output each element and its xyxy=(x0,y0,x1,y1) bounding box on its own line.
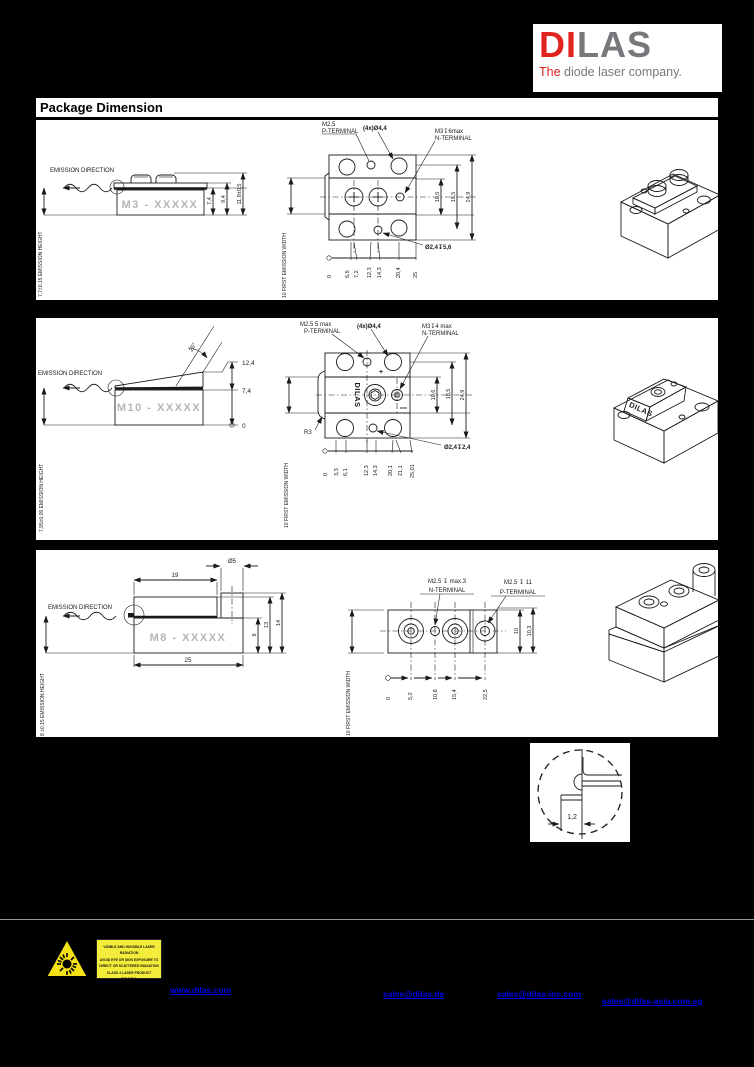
m3-tick-0: 0 xyxy=(327,275,333,278)
logo-tagline-the: The xyxy=(539,65,561,79)
m3-tick-25: 25 xyxy=(413,272,419,278)
m8-drawing: EMISSION DIRECTION Ø5 19 8 13 14 25 M8 -… xyxy=(36,550,718,737)
m8-side-view-linework xyxy=(46,566,286,667)
m10-model-label: M10 - XXXXX xyxy=(117,402,201,414)
logo-tagline: The diode laser company. xyxy=(539,65,716,79)
m10-dim-12-4: 12,4 xyxy=(242,360,255,367)
section-heading-bar: Package Dimension xyxy=(36,98,718,120)
m3-emission-width-label: 10 FIRST EMISSION WIDTH xyxy=(282,233,288,298)
drawing-section-m10: EMISSION DIRECTION 25° 12,4 7,4 0 M10 - … xyxy=(36,318,718,540)
m10-tick-21-1: 21,1 xyxy=(398,465,404,476)
m3-dim-24-9: 24,9 xyxy=(466,192,472,203)
m10-emission-width-label: 10 FIRST EMISSION WIDTH xyxy=(284,463,290,528)
m3-emission-direction-label: EMISSION DIRECTION xyxy=(50,168,114,174)
logo-tagline-rest: diode laser company. xyxy=(561,65,682,79)
m10-dim-18-5: 18,5 xyxy=(446,389,452,400)
m8-pterm-size: M2.5 ↧ 11 xyxy=(504,579,533,586)
m10-pterm-size: M2.5 5 max xyxy=(300,322,331,328)
m10-emission-direction-label: EMISSION DIRECTION xyxy=(38,371,102,377)
m8-dim-10: 10 xyxy=(514,628,520,634)
m3-pterm-label: P-TERMINAL xyxy=(322,129,359,135)
m8-tick-10-8: 10,8 xyxy=(433,689,439,700)
m3-dim-10-5: 10,5 xyxy=(435,192,441,203)
link-sales-asia[interactable]: sales@dilas-asia.com.sg xyxy=(602,996,702,1006)
logo-di: DI xyxy=(539,24,577,65)
m10-pterm-label: P-TERMINAL xyxy=(304,329,341,335)
m10-tick-14-3: 14,3 xyxy=(373,465,379,476)
m10-cbore-label: Ø2,4↧2,4 xyxy=(444,444,471,451)
m10-holes-label: (4x)Ø4,4 xyxy=(357,324,381,330)
laser-warning-icon xyxy=(44,936,90,981)
m10-dim-24-9: 24,9 xyxy=(460,390,466,401)
m3-drawing: EMISSION DIRECTION 7,4 9,4 11,9±0,5 M3 -… xyxy=(36,120,718,300)
m10-radius-label: R3 xyxy=(304,430,312,436)
m3-nterm-label: N-TERMINAL xyxy=(435,136,472,142)
m3-tick-20-4: 20,4 xyxy=(396,267,402,278)
m8-tick-15-4: 15,4 xyxy=(452,689,458,700)
m8-nterm-size: M2.5 ↧ max.3 xyxy=(428,578,467,585)
logo-las: LAS xyxy=(577,24,652,65)
detail-linework xyxy=(538,749,622,839)
m8-isometric-view xyxy=(609,564,718,683)
m3-dim-9-4: 9,4 xyxy=(221,195,227,203)
detail-view: 1,2 xyxy=(530,743,630,842)
m8-emission-height-label: 8 ±0,15 EMISSION HEIGHT xyxy=(40,673,46,736)
m3-holes-label: (4x)Ø4,4 xyxy=(363,126,387,132)
m8-front-view-linework xyxy=(348,594,545,680)
m10-tick-20-1: 20,1 xyxy=(388,465,394,476)
m3-front-view-linework xyxy=(287,132,476,260)
m8-dim-14: 14 xyxy=(276,620,282,626)
warning-line: IEC 825-1 xyxy=(97,976,161,982)
m10-emission-height-label: 7,95±0,05 EMISSION HEIGHT xyxy=(39,464,45,532)
m8-dim-d5: Ø5 xyxy=(228,559,237,565)
m10-dim-0: 0 xyxy=(242,423,246,430)
m3-tick-14-3: 14,3 xyxy=(377,267,383,278)
m10-angle-label: 25° xyxy=(189,342,199,353)
logo-wordmark: DILAS xyxy=(539,26,716,64)
m3-tick-6-5: 6,5 xyxy=(345,270,351,278)
detail-drawing: 1,2 xyxy=(530,743,630,842)
m10-plus-mark: + xyxy=(379,369,383,376)
m8-dim-10-3: 10,3 xyxy=(527,626,533,637)
m8-dim-8: 8 xyxy=(252,633,258,636)
m8-dim-13: 13 xyxy=(264,622,270,628)
m8-pterm-label: P-TERMINAL xyxy=(500,590,537,596)
m8-emission-width-label: 10 FIRST EMISSION WIDTH xyxy=(346,671,352,736)
m8-dim-19: 19 xyxy=(172,573,179,579)
m3-pterm-size: M2.5 xyxy=(322,122,336,128)
laser-warning-label: VISIBLE AND INVISIBLE LASER RADIATION AV… xyxy=(96,939,162,979)
m10-dim-10-6: 10,6 xyxy=(431,390,437,401)
link-sales-de[interactable]: sales@dilas.de xyxy=(383,989,444,999)
m10-drawing: EMISSION DIRECTION 25° 12,4 7,4 0 M10 - … xyxy=(36,318,718,540)
m8-nterm-label: N-TERMINAL xyxy=(429,588,466,594)
drawing-section-m3: EMISSION DIRECTION 7,4 9,4 11,9±0,5 M3 -… xyxy=(36,120,718,300)
link-sales-inc[interactable]: sales@dilas-inc.com xyxy=(497,989,581,999)
m3-tick-7-2: 7,2 xyxy=(354,270,360,278)
m8-dim-25: 25 xyxy=(185,658,192,664)
m3-emission-height-label: 7,7±0,15 EMISSION HEIGHT xyxy=(38,231,44,297)
m10-tick-0: 0 xyxy=(323,473,329,476)
link-website[interactable]: www.dilas.com xyxy=(170,985,231,995)
m8-model-label: M8 - XXXXX xyxy=(150,632,227,644)
detail-dim-1-2: 1,2 xyxy=(567,814,577,821)
m10-tick-25-01: 25,01 xyxy=(410,464,416,478)
m10-tick-6-1: 6,1 xyxy=(343,468,349,476)
m10-tick-12-3: 12,3 xyxy=(364,465,370,476)
dilas-logo: DILAS The diode laser company. xyxy=(533,24,722,92)
m3-nterm-size: M3↧6max xyxy=(435,128,463,135)
m8-tick-5-2: 5,2 xyxy=(408,692,414,700)
m8-emission-direction-label: EMISSION DIRECTION xyxy=(48,605,112,611)
m3-cbore-label: Ø2,4↧5,6 xyxy=(425,244,452,251)
m3-dim-18-5: 18,5 xyxy=(451,192,457,203)
warning-line: VISIBLE AND INVISIBLE LASER RADIATION xyxy=(97,944,161,957)
m10-nterm-label: N-TERMINAL xyxy=(422,331,459,337)
m3-model-label: M3 - XXXXX xyxy=(122,199,199,211)
m3-dim-11-9: 11,9±0,5 xyxy=(237,184,243,205)
m3-isometric-view xyxy=(621,170,718,259)
page-title: Package Dimension xyxy=(36,98,718,115)
warning-line: DIRECT OR SCATTERED RADIATION xyxy=(97,963,161,969)
m3-dim-7-4: 7,4 xyxy=(207,197,213,205)
m10-brand-stamp: DILAS xyxy=(353,383,362,408)
m10-tick-3-3: 3,3 xyxy=(334,468,340,476)
m10-isometric-view: DILAS xyxy=(614,379,718,463)
m10-dim-7-4: 7,4 xyxy=(242,388,251,395)
drawing-section-m8: EMISSION DIRECTION Ø5 19 8 13 14 25 M8 -… xyxy=(36,550,718,737)
m8-tick-22-5: 22,5 xyxy=(483,689,489,700)
footer-separator xyxy=(0,919,754,920)
m3-tick-12-3: 12,3 xyxy=(367,267,373,278)
m10-nterm-size: M3↧4 max xyxy=(422,323,452,330)
m8-tick-0: 0 xyxy=(386,697,392,700)
